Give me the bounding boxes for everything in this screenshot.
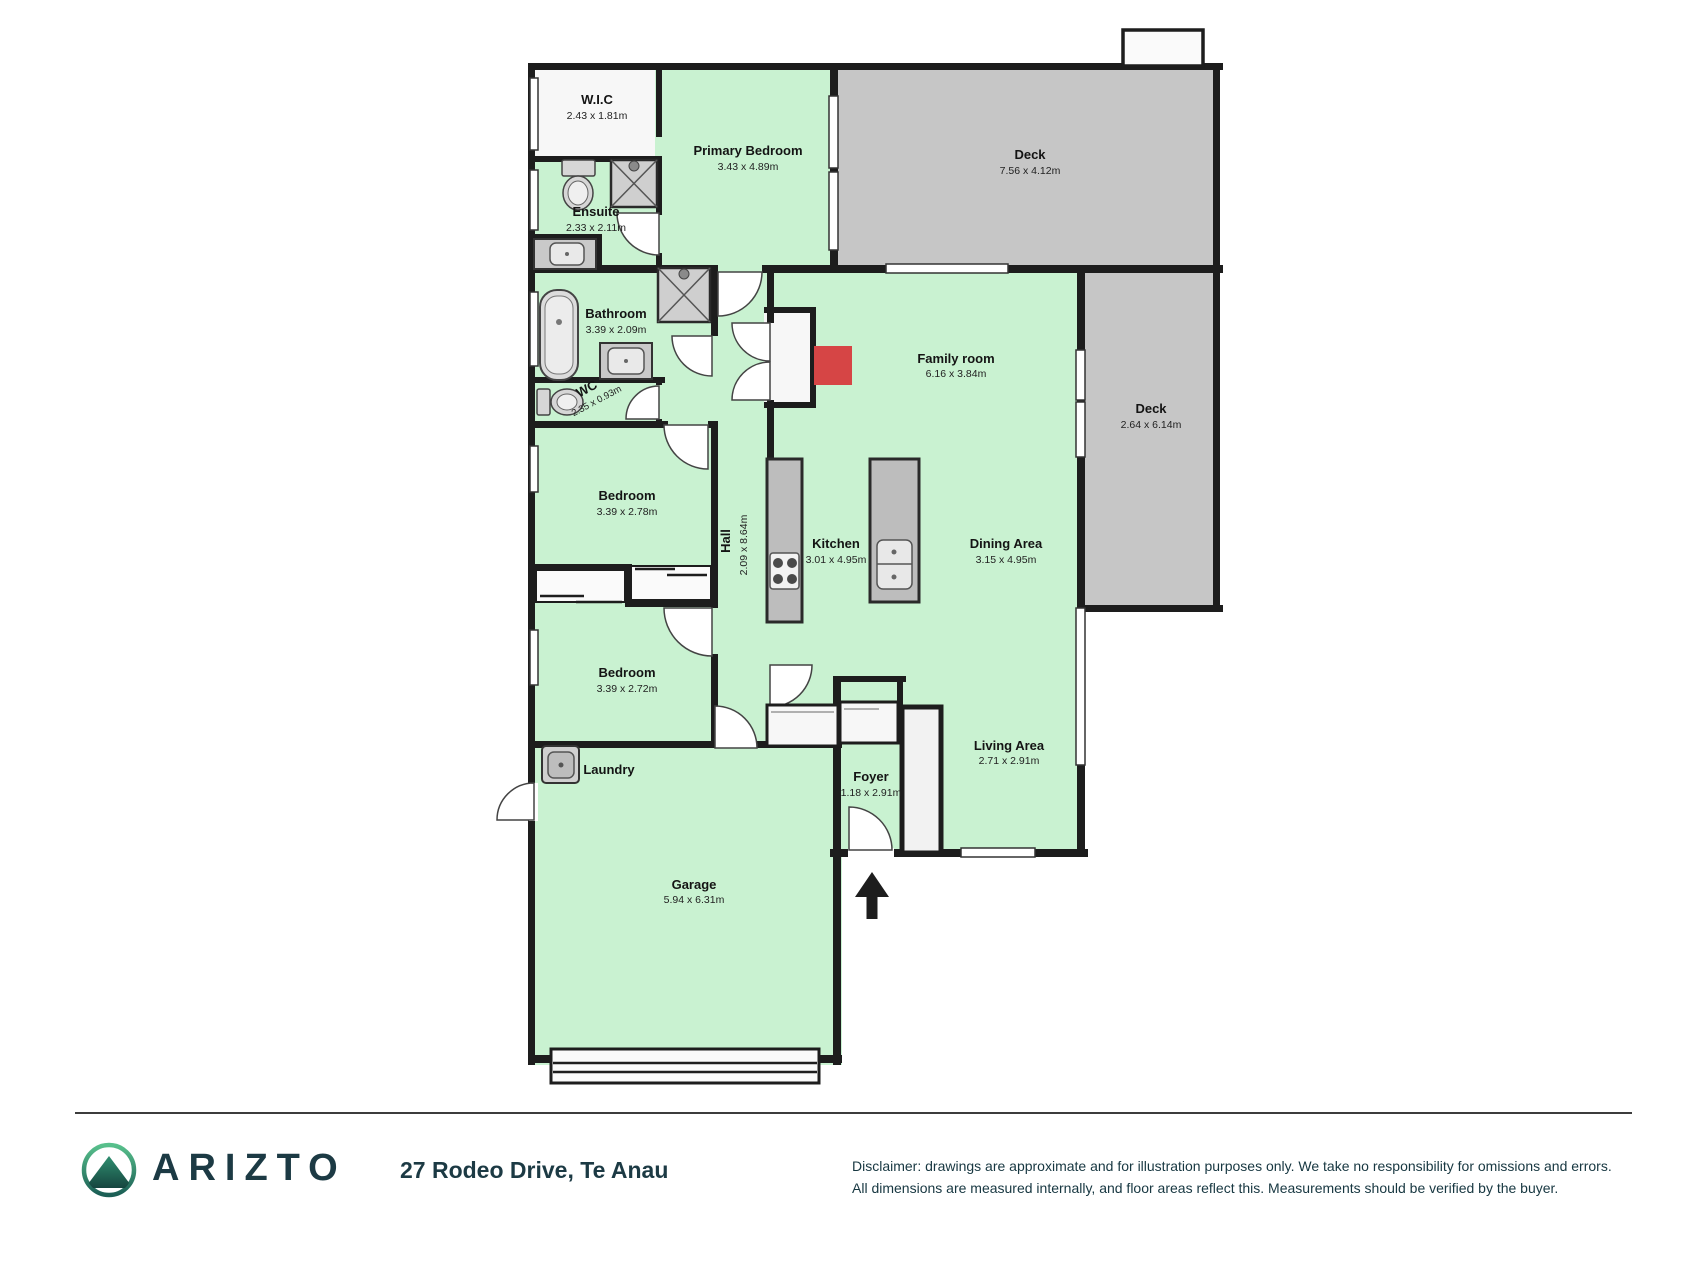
svg-text:Bedroom: Bedroom <box>598 488 655 503</box>
svg-text:2.33 x 2.11m: 2.33 x 2.11m <box>566 222 626 234</box>
svg-text:6.16 x 3.84m: 6.16 x 3.84m <box>926 368 987 380</box>
svg-text:2.09 x 8.64m: 2.09 x 8.64m <box>738 514 750 575</box>
svg-text:Primary Bedroom: Primary Bedroom <box>693 143 802 158</box>
floorplan-drawing: W.I.C 2.43 x 1.81m Primary Bedroom 3.43 … <box>0 0 1707 1280</box>
svg-text:Foyer: Foyer <box>853 769 888 784</box>
shower-ensuite <box>611 160 657 207</box>
brand-name: ARIZTO <box>152 1147 347 1190</box>
entry-arrow-icon <box>855 872 889 919</box>
partition-wall <box>902 707 941 853</box>
svg-text:2.71 x 2.91m: 2.71 x 2.91m <box>979 755 1040 767</box>
svg-text:2.43 x 1.81m: 2.43 x 1.81m <box>567 110 628 122</box>
svg-text:Hall: Hall <box>718 529 733 553</box>
room-label-garage: Garage 5.94 x 6.31m <box>664 877 725 906</box>
svg-text:3.39 x 2.72m: 3.39 x 2.72m <box>597 683 658 695</box>
kitchen-counter <box>767 459 802 622</box>
disclaimer-line-1: Disclaimer: drawings are approximate and… <box>852 1155 1632 1177</box>
cupboard-foyer <box>840 702 898 743</box>
svg-text:5.94 x 6.31m: 5.94 x 6.31m <box>664 894 725 906</box>
svg-text:Garage: Garage <box>672 877 717 892</box>
deck-step <box>1123 30 1203 66</box>
disclaimer-text: Disclaimer: drawings are approximate and… <box>852 1155 1632 1199</box>
garage-door <box>551 1049 819 1083</box>
property-address: 27 Rodeo Drive, Te Anau <box>400 1157 668 1184</box>
kitchen-island <box>870 459 919 602</box>
room-label-laundry: Laundry <box>583 762 635 777</box>
svg-text:3.15 x 4.95m: 3.15 x 4.95m <box>976 554 1037 566</box>
laundry-sink <box>542 746 579 783</box>
svg-text:Ensuite: Ensuite <box>573 204 620 219</box>
svg-text:3.01 x 4.95m: 3.01 x 4.95m <box>806 554 867 566</box>
toilet-ensuite <box>562 160 595 210</box>
svg-text:Deck: Deck <box>1014 147 1046 162</box>
svg-text:3.39 x 2.78m: 3.39 x 2.78m <box>597 506 658 518</box>
arizto-logo-icon <box>80 1141 138 1199</box>
svg-text:W.I.C: W.I.C <box>581 92 613 107</box>
vanity-bathroom <box>600 343 652 379</box>
room-label-family-room: Family room 6.16 x 3.84m <box>917 351 994 380</box>
svg-text:Dining Area: Dining Area <box>970 536 1043 551</box>
floorplan-page: W.I.C 2.43 x 1.81m Primary Bedroom 3.43 … <box>0 0 1707 1280</box>
svg-text:Deck: Deck <box>1135 401 1167 416</box>
svg-text:Living Area: Living Area <box>974 738 1045 753</box>
vanity-ensuite <box>534 239 596 269</box>
room-label-living-area: Living Area 2.71 x 2.91m <box>974 738 1045 767</box>
footer-divider <box>75 1112 1632 1114</box>
shower-bathroom <box>658 268 710 322</box>
svg-text:3.39 x 2.09m: 3.39 x 2.09m <box>586 324 647 336</box>
svg-text:2.64 x 6.14m: 2.64 x 6.14m <box>1121 419 1182 431</box>
door-exterior <box>497 783 534 820</box>
fireplace <box>814 346 852 385</box>
svg-text:3.43 x 4.89m: 3.43 x 4.89m <box>718 161 779 173</box>
svg-text:7.56 x 4.12m: 7.56 x 4.12m <box>1000 165 1061 177</box>
closet-right <box>631 566 711 600</box>
svg-text:Laundry: Laundry <box>583 762 635 777</box>
svg-text:Family room: Family room <box>917 351 994 366</box>
disclaimer-line-2: All dimensions are measured internally, … <box>852 1177 1632 1199</box>
svg-text:1.18 x 2.91m: 1.18 x 2.91m <box>841 787 902 799</box>
bathtub <box>540 290 578 380</box>
svg-text:Kitchen: Kitchen <box>812 536 860 551</box>
cupboard-hall <box>767 705 838 746</box>
svg-text:Bathroom: Bathroom <box>585 306 646 321</box>
svg-text:Bedroom: Bedroom <box>598 665 655 680</box>
